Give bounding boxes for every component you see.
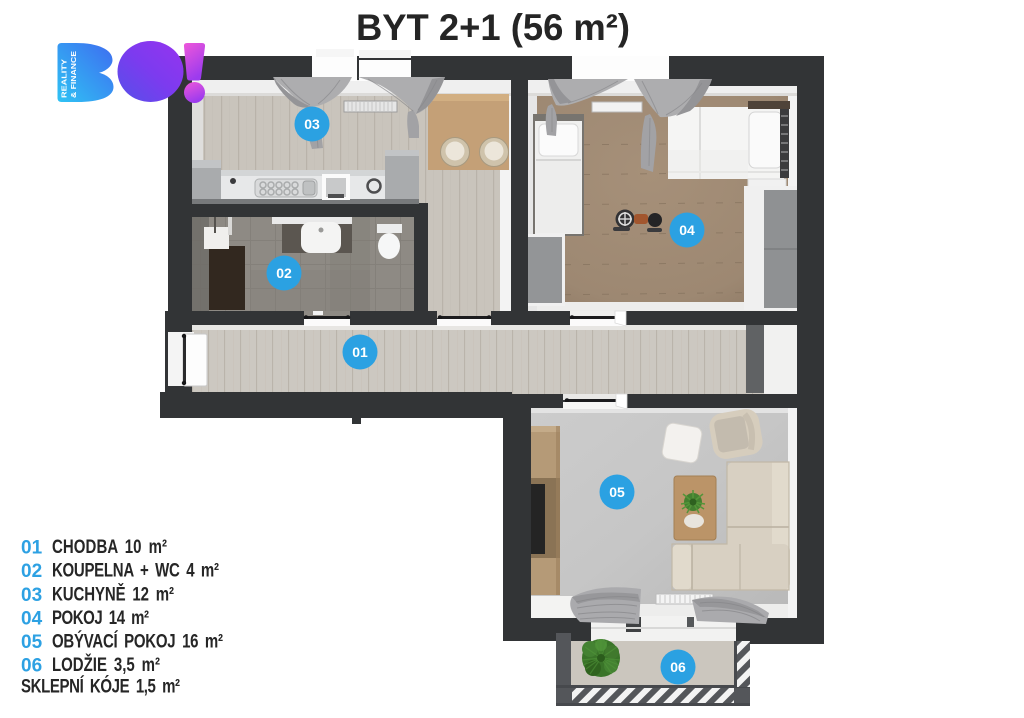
svg-text:03: 03 xyxy=(21,585,42,606)
svg-text:KUCHYNĚ 12 m²: KUCHYNĚ 12 m² xyxy=(52,584,174,605)
svg-text:01: 01 xyxy=(21,538,43,559)
svg-text:KOUPELNA + WC 4 m²: KOUPELNA + WC 4 m² xyxy=(52,560,219,581)
svg-text:02: 02 xyxy=(276,265,292,281)
svg-text:05: 05 xyxy=(609,484,625,500)
svg-text:REALITY: REALITY xyxy=(60,59,69,98)
svg-text:01: 01 xyxy=(352,344,368,360)
svg-text:06: 06 xyxy=(670,659,686,675)
svg-text:03: 03 xyxy=(304,116,320,132)
svg-text:04: 04 xyxy=(21,609,43,630)
svg-text:POKOJ 14 m²: POKOJ 14 m² xyxy=(52,607,149,628)
svg-text:02: 02 xyxy=(21,561,42,582)
svg-text:BYT 2+1 (56 m²): BYT 2+1 (56 m²) xyxy=(356,7,630,48)
svg-text:OBÝVACÍ POKOJ 16 m²: OBÝVACÍ POKOJ 16 m² xyxy=(52,631,223,652)
svg-text:04: 04 xyxy=(679,222,695,238)
svg-text:06: 06 xyxy=(21,656,42,677)
svg-text:05: 05 xyxy=(21,632,43,653)
svg-text:LODŽIE 3,5 m²: LODŽIE 3,5 m² xyxy=(52,654,160,675)
svg-text:& FINANCE: & FINANCE xyxy=(69,51,78,98)
svg-text:CHODBA 10 m²: CHODBA 10 m² xyxy=(52,536,167,557)
svg-text:SKLEPNÍ KÓJE 1,5 m²: SKLEPNÍ KÓJE 1,5 m² xyxy=(21,676,180,697)
